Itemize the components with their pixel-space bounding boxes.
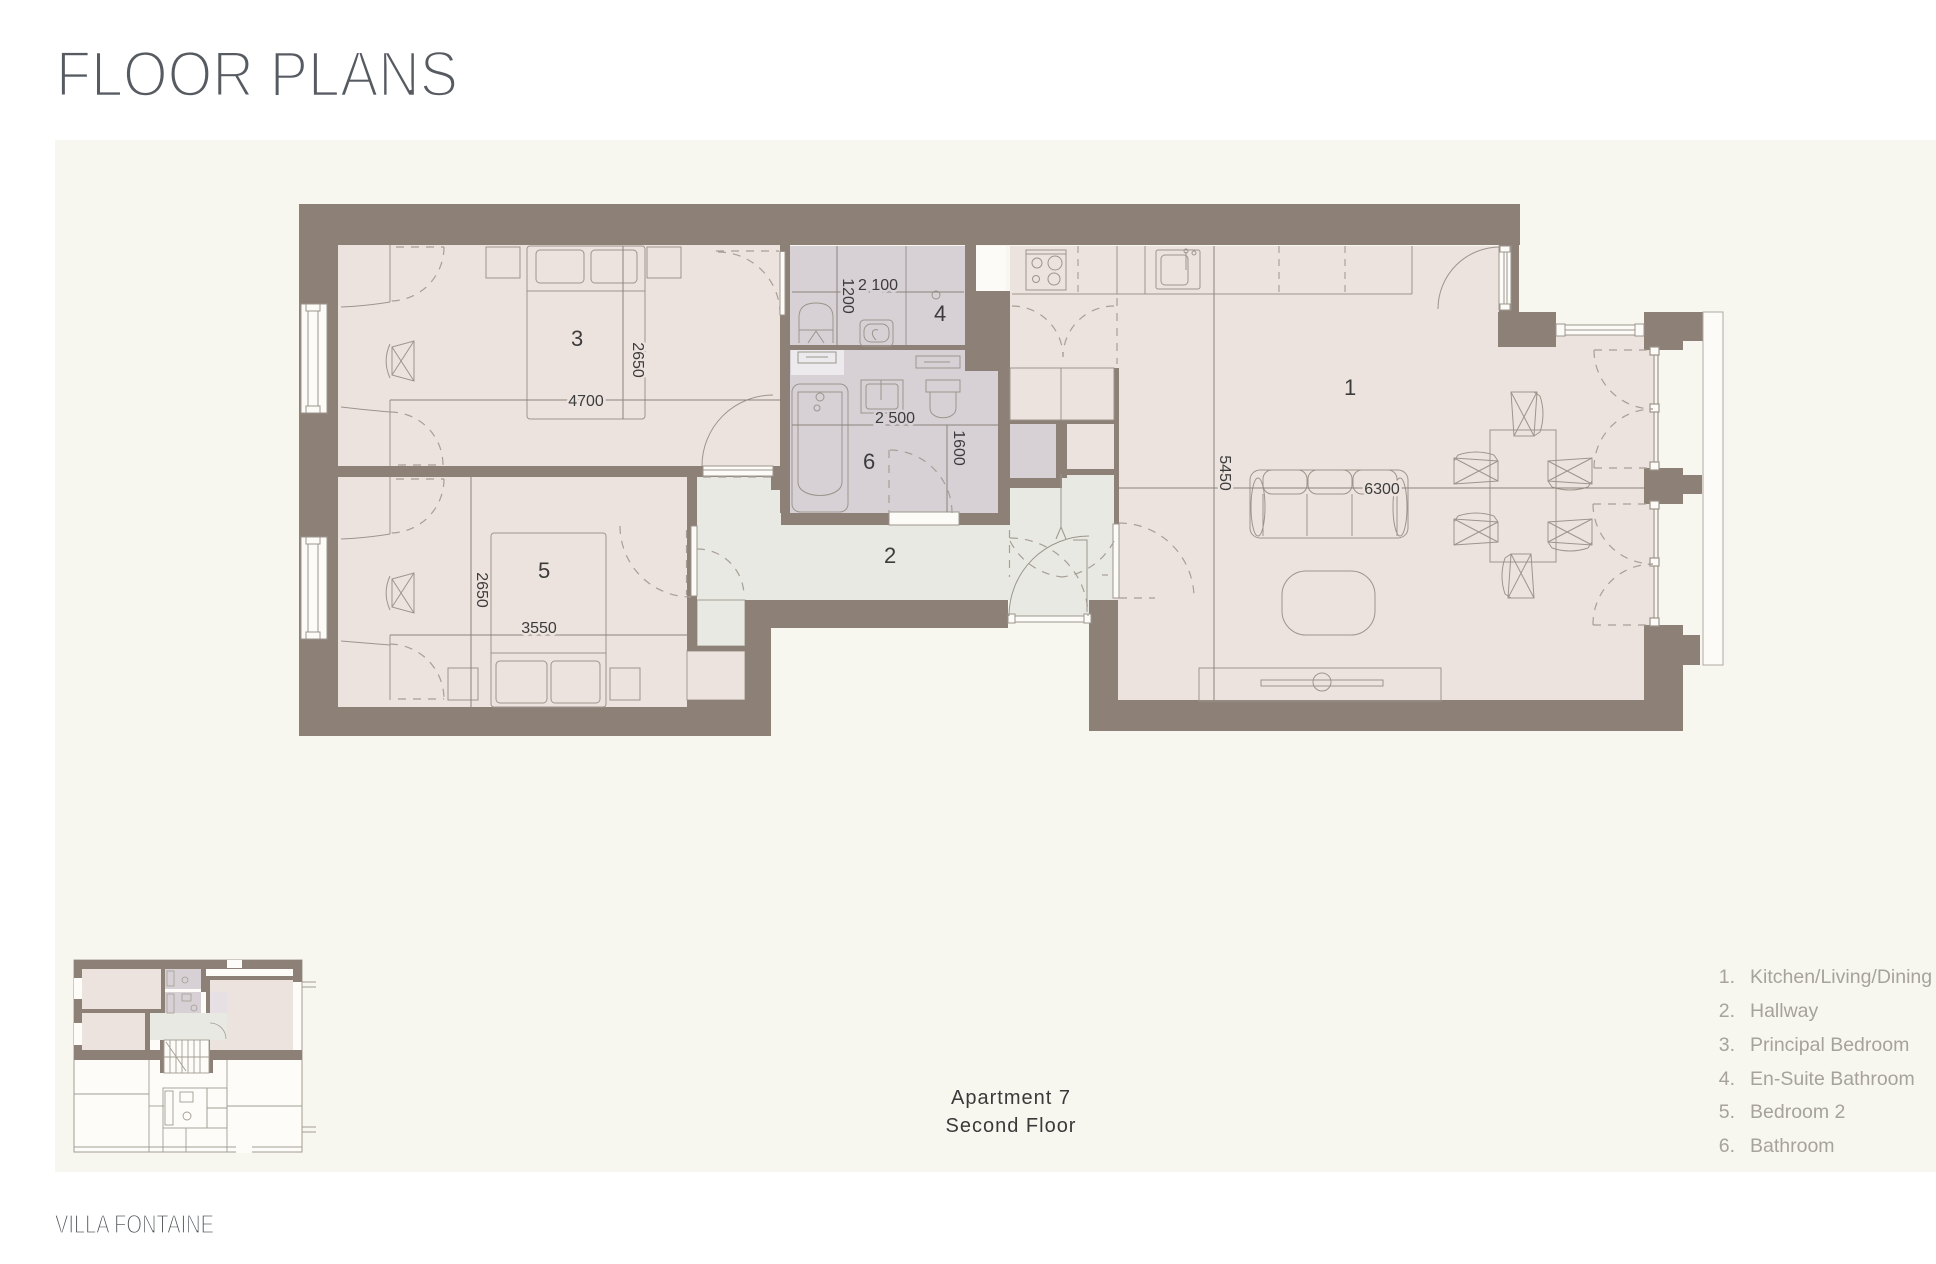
svg-text:4700: 4700 [568,393,604,410]
svg-text:4.: 4. [1719,1068,1735,1090]
svg-text:3.: 3. [1719,1034,1735,1056]
svg-text:Principal Bedroom: Principal Bedroom [1750,1034,1909,1056]
svg-text:FLOOR PLANS: FLOOR PLANS [56,38,458,110]
svg-text:VILLA FONTAINE: VILLA FONTAINE [55,1209,214,1239]
svg-text:6300: 6300 [1364,481,1400,498]
svg-text:6: 6 [863,449,875,474]
svg-text:2650: 2650 [629,342,646,378]
svg-text:Kitchen/Living/Dining: Kitchen/Living/Dining [1750,966,1932,988]
svg-text:3550: 3550 [521,620,557,637]
svg-text:2.: 2. [1719,1000,1735,1022]
svg-text:Apartment 7: Apartment 7 [951,1087,1071,1109]
svg-text:1600: 1600 [950,430,967,466]
svg-text:1.: 1. [1719,966,1735,988]
svg-text:2 500: 2 500 [875,410,915,427]
svg-text:2: 2 [884,543,896,568]
svg-text:6.: 6. [1719,1135,1735,1157]
svg-text:En-Suite Bathroom: En-Suite Bathroom [1750,1068,1915,1090]
svg-text:Hallway: Hallway [1750,1000,1819,1022]
svg-text:1200: 1200 [839,278,856,314]
svg-text:Second Floor: Second Floor [946,1115,1077,1137]
svg-text:Bedroom 2: Bedroom 2 [1750,1101,1845,1123]
svg-text:5.: 5. [1719,1101,1735,1123]
svg-text:5450: 5450 [1216,455,1233,491]
svg-text:1: 1 [1344,375,1356,400]
svg-text:Bathroom: Bathroom [1750,1135,1835,1157]
svg-text:4: 4 [934,301,946,326]
svg-text:2650: 2650 [473,572,490,608]
svg-text:2 100: 2 100 [858,277,898,294]
svg-text:5: 5 [538,558,550,583]
svg-text:3: 3 [571,326,583,351]
